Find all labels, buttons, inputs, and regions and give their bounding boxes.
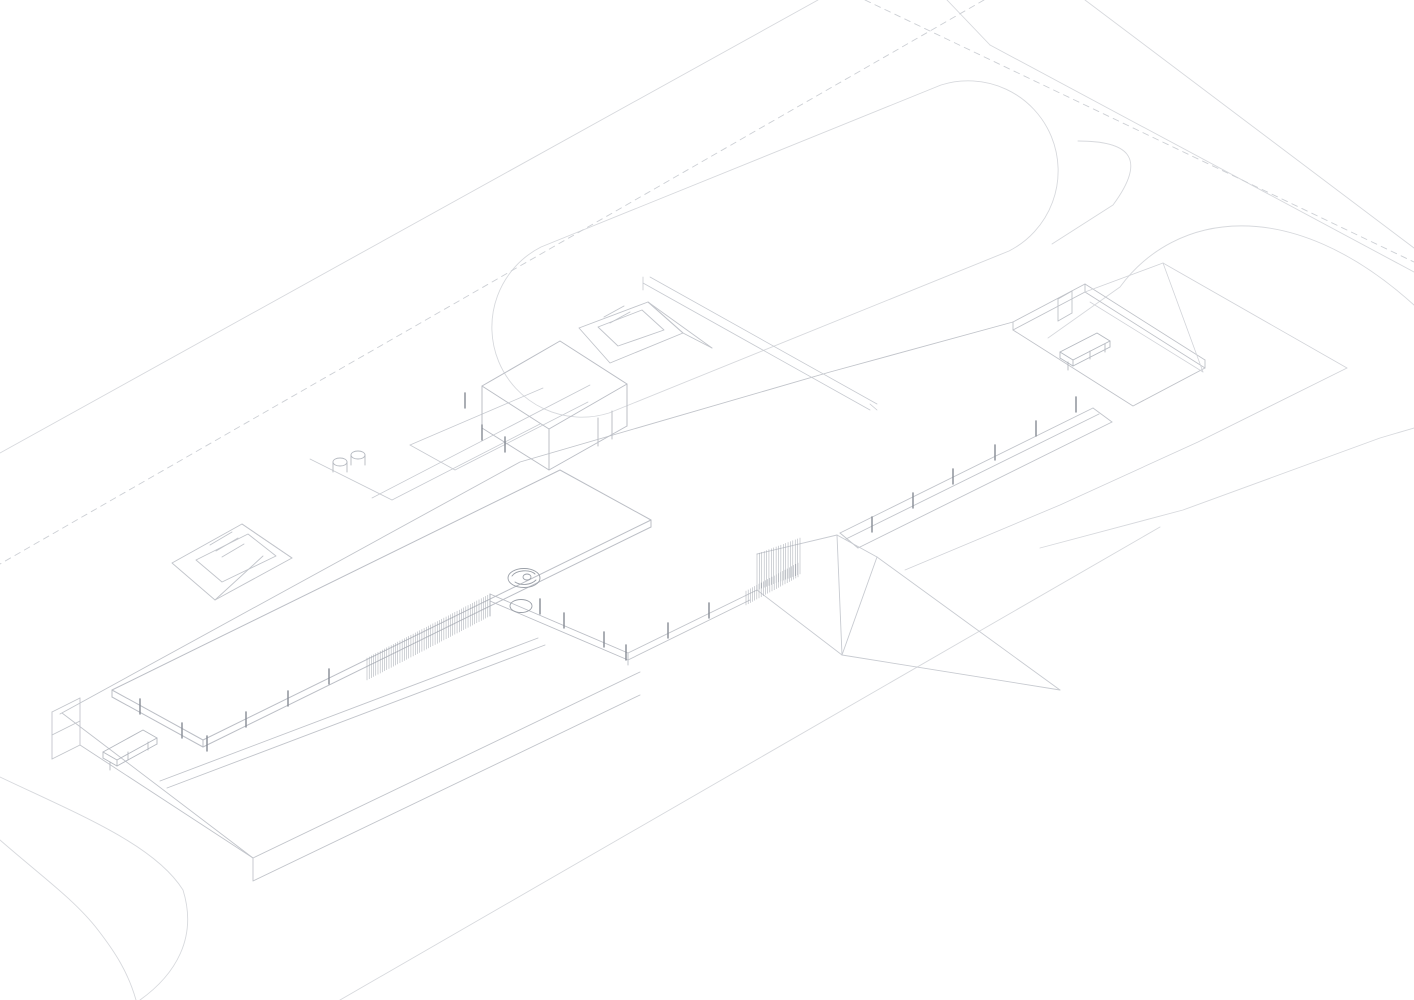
skylight-northeast: [579, 302, 712, 363]
statue-court-walls: [490, 594, 628, 665]
site-boundary-dashed: [0, 0, 1414, 564]
column-ticks: [140, 393, 1076, 751]
podium: [52, 322, 1013, 881]
service-building: [482, 341, 627, 470]
back-garden-wall: [643, 277, 877, 410]
pond-banks: [905, 263, 1347, 570]
pool-court-northeast: [1013, 284, 1205, 406]
skylight-west: [172, 524, 292, 600]
statue: [508, 569, 540, 613]
axonometric-svg: [0, 0, 1414, 1000]
site-roads: [0, 0, 1414, 1000]
basin-embankment-wedge: [757, 535, 1060, 690]
hall-interior-walls: [310, 385, 590, 500]
service-court-cylinders: [333, 451, 365, 472]
glass-wall-hatching: [367, 538, 800, 680]
site-axonometric-drawing: [0, 0, 1414, 1000]
long-basin: [840, 408, 1112, 548]
